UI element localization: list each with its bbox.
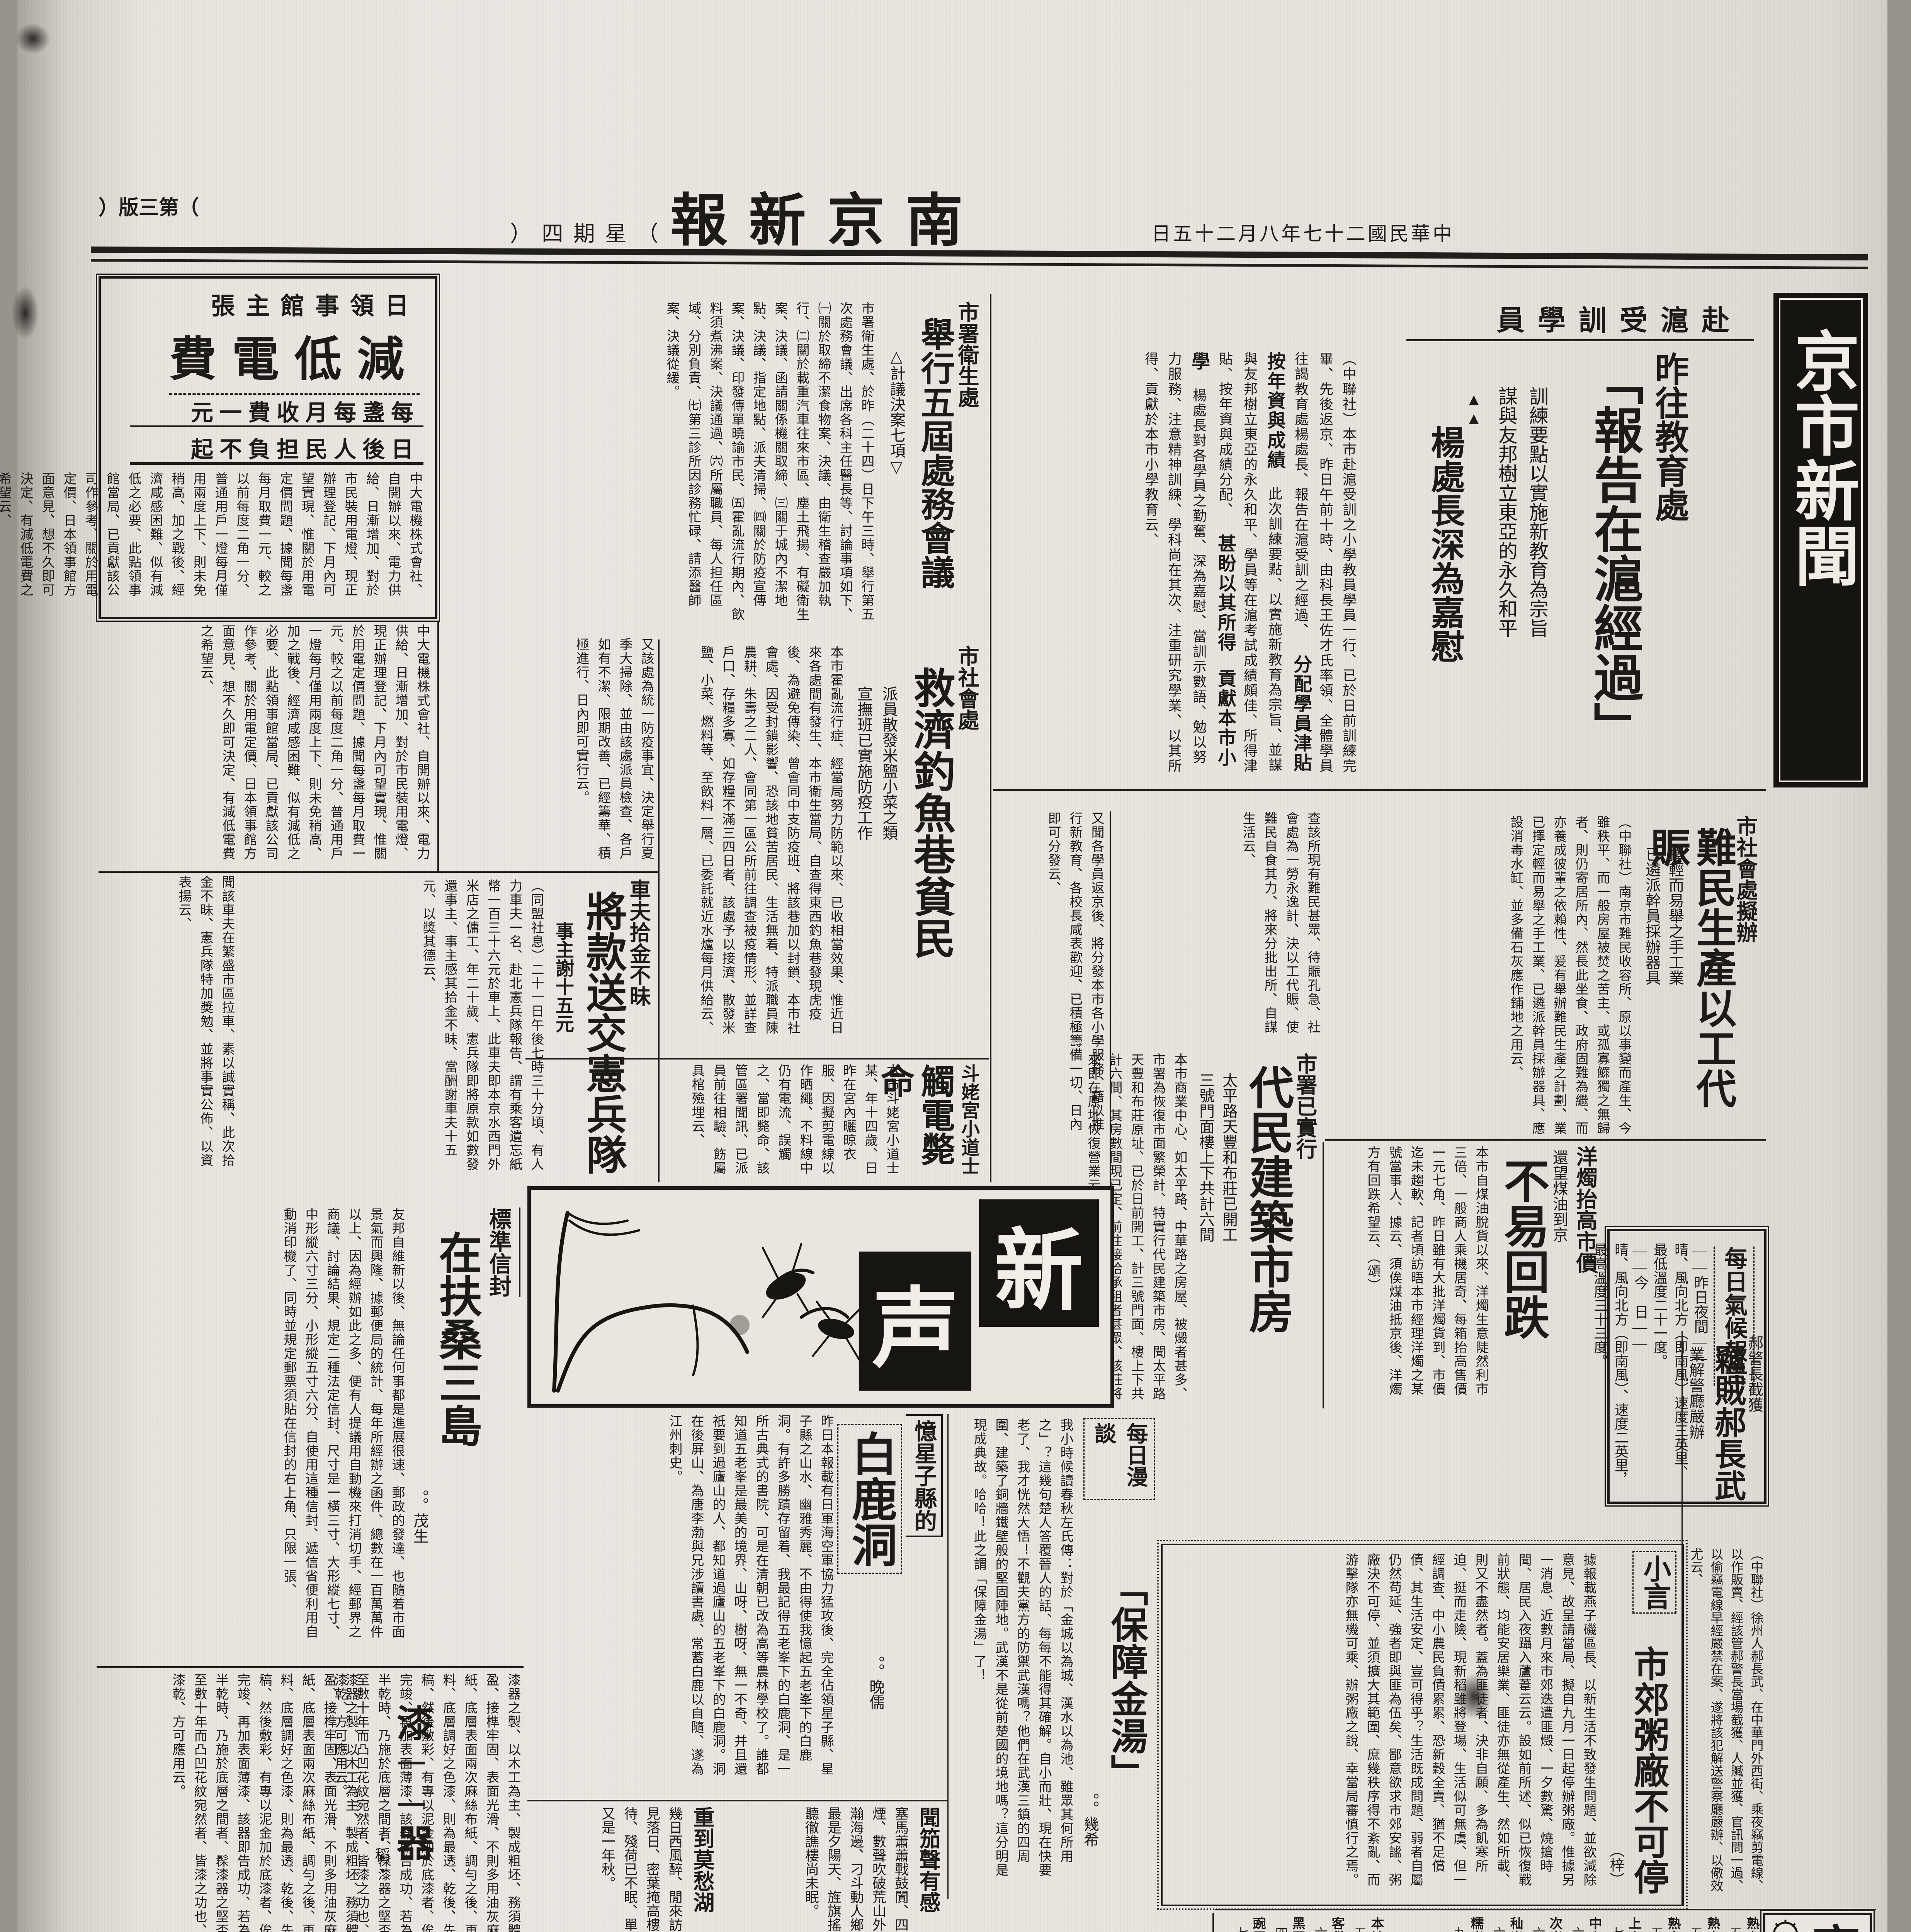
column-box-title: 每日漫談 — [1083, 1418, 1155, 1500]
price-item: 熟上次五九・〇〇 — [1726, 1917, 1760, 1932]
article-daily-chat: 每日漫談 「保障金湯」 。。幾希 我小時候讀春秋左氏傳：對於「金城以為城、漢水以… — [950, 1414, 1159, 1899]
poem-text: 塞馬蕭蕭戰鼓闐、四方猶未靖烽煙、數聲吹破荒山外、千里長征瀚海邊、刁斗動人鄉思處、… — [726, 1806, 912, 1932]
headline-deck: 擇輕而易舉之手工業 — [1663, 846, 1687, 985]
column-title: 小言 — [1632, 1551, 1676, 1614]
feature-title: 「保障金湯」 — [1104, 1569, 1148, 1791]
article-electrocution: 斗姥宮小道士 觸電斃命 本市斗姥宮小道士某、年十四歲、日昨在宮內曬晾衣服、因擬剪… — [525, 1061, 987, 1181]
headline-deck: 太平路天豐和布莊已開工 — [1217, 1072, 1240, 1242]
headline-deck: 宣撫班已實施防疫工作 — [852, 686, 875, 1034]
xinsheng-banner: 新 声 — [527, 1186, 1114, 1408]
article-body: （中聯社）南京市難民收容所、原以事變而產生、今雖秩平、而一般房屋被焚之苦主、或孤… — [1495, 815, 1634, 1136]
article-body: 本市商業中心、如太平路、中華路之房屋、被燬者甚多、市署為恢復市面繁榮計、特實行代… — [1117, 1053, 1190, 1401]
price-item: 熟次五一・〇〇 — [1647, 1917, 1681, 1932]
masthead-title: 報新京南 — [670, 174, 984, 257]
headline-deck: 起不負担民人後日 — [191, 431, 420, 464]
ink-smudge — [15, 23, 50, 54]
newspaper-page: ）版三第（ ）四期星（ 報新京南 日五十二月八年七十二國民華中 京市新聞 員學訓… — [0, 0, 1911, 1932]
article-bailu-cave: 憶星子縣的 白鹿洞 。。晚儒 昨日本報載有日軍海空軍協力猛攻後、完全佔領星子縣、… — [527, 1408, 949, 1797]
article-body: 漆器之製、以木工為主、製成粗坯、務須體質輕盈、接榫牢固、表面光滑、不則多用油灰麻… — [102, 1673, 361, 1932]
article-kicker: 斗姥宮小道士 — [955, 1064, 981, 1175]
headline-main: 市郊粥廠不可停 — [1628, 1646, 1669, 1895]
headline-deck: △計議決案七項▽ — [885, 348, 908, 476]
headline-prefix: 昨往教育處 — [1648, 352, 1688, 522]
edition-label: ）版三第（ — [99, 191, 199, 220]
article-kicker: 市署衛生處 — [951, 301, 981, 408]
article-body: （同盟社息）二十一日午後七時三十分頃、有人力車夫一名、赴北憲兵隊報告、謂有乘客遺… — [249, 879, 547, 1177]
arrow-marks: ▲▲ — [1464, 390, 1484, 428]
headline-deck: 三號門面樓上下共計六間 — [1194, 1072, 1217, 1242]
weather-text: 晴、風向北方（即南風）、速度二英里，最高溫度三十三度。 — [1589, 1243, 1631, 1486]
author-signature: 。。茂生 — [408, 1490, 431, 1544]
article-hygiene-meeting: 市署衛生處 舉行五屆處務會議 △計議決案七項▽ 市署衛生處、於昨（二十四）日下午… — [440, 294, 985, 634]
headline-deck: 派員散發米鹽小菜之類 — [877, 686, 900, 1034]
article-body: （中聯社）本市赴滬受訓之小學教員學員一行、已於日前訓練完畢、先後返京、昨日午前十… — [1001, 352, 1360, 777]
article-body: 本市霍亂流行症、經當局努力防範以來、已收相當效果、惟近日來各處間有發生、本市衛生… — [665, 645, 846, 1047]
article-kicker: 郝警長截獲 — [1743, 1335, 1766, 1412]
logo-char-sheng: 声 — [859, 1252, 971, 1391]
article-body: 本市斗姥宮小道士某、年十四歲、日昨在宮內曬晾衣服、因擬剪電線以作晒繩、不料線中仍… — [535, 1064, 902, 1176]
price-item: 上次七六・六〇 — [1608, 1917, 1642, 1932]
article-body: 中大電機株式會社、自開辦以來、電力供給、日漸增加、對於市民裝用電燈、現正辦理登記… — [112, 472, 425, 607]
price-item: 糯米九一・〇〇 — [1450, 1917, 1484, 1932]
article-body: 我小時候讀春秋左氏傳：對於「金城以為城、漢水以為池、雖眾其何所用之」？這幾句楚人… — [954, 1418, 1076, 1889]
article-body: 據報載燕子磯區長、以新生活不致發生問題、並欲減除意見、故呈請當局、擬自九月一日起… — [1170, 1553, 1599, 1893]
article-report-shanghai: 員學訓受滬赴 昨往教育處 「報告在滬經過」 訓練要點以實施新教育為宗旨 謀與友邦… — [993, 294, 1766, 788]
market-prices-section: 商情 ●米類 每担價 熟上次五九・〇〇熟中次五五・四〇熟次五一・〇〇上次七六・六… — [1215, 1913, 1876, 1932]
price-item: 熟中次五五・四〇 — [1687, 1917, 1721, 1932]
headline-main: 費電低減 — [169, 321, 420, 395]
article-fishing-lane-relief: 市社會處 救濟釣魚巷貧民 派員散發米鹽小菜之類 宣撫班已實施防疫工作 本市霍亂流… — [661, 639, 989, 1053]
article-body: 友邦自維新以後、無論任何事都是進展很速、郵政的發達、也隨着市面景氣而興隆、據郵便… — [102, 1207, 408, 1648]
weekday-label: ）四期星（ — [510, 216, 668, 248]
grass-cricket-illustration — [531, 1190, 898, 1397]
prices-header-title: 商情 — [1804, 1923, 1858, 1932]
section-banner-title: 京市新聞 — [1769, 328, 1873, 587]
headline-main: 救濟釣魚巷貧民 — [906, 667, 954, 959]
headline-deck: 已遴派幹員採辦器具 — [1640, 846, 1663, 985]
article-kicker: 張主館事領日 — [211, 286, 420, 321]
headline-deck: 事主謝十五元 — [549, 922, 576, 1033]
price-item: 客貨豆六八・〇〇 — [1311, 1917, 1345, 1932]
article-kicker: 車夫拾金不昧 — [623, 879, 653, 1007]
poem-text: 幾日西風醉、閒來訪草愁、疎林見落日、密葉掩高樓、寒車如相待、殘荷已不眠、單車重到… — [535, 1806, 686, 1932]
article-body-continued: 查該所現有難民甚眾、待賑孔急、社會處為一勞永逸計、決以工代賑、使難民自食其力、將… — [1115, 811, 1323, 1039]
headline-main: 竊賊郝長武 — [1709, 1343, 1746, 1501]
poetry-column: 聞笳聲有感 ・瑛・ 塞馬蕭蕭戰鼓闐、四方猶未靖烽煙、數聲吹破荒山外、千里長征瀚海… — [529, 1803, 949, 1932]
headline-main: 「報告在滬經過」 — [1586, 355, 1642, 751]
author-signature: 。。晚儒 — [864, 1656, 887, 1710]
article-electric-fee-box: 張主館事領日 費電低減 元一費收月每盞每 起不負担民人後日 中大電機株式會社、自… — [99, 276, 437, 619]
headline-deck: 謀與友邦樹立東亞的永久和平 — [1493, 386, 1520, 680]
article-xiaoyan-box: 小言 市郊粥廠不可停 （梓） 據報載燕子磯區長、以新生活不致發生問題、並欲減除意… — [1161, 1544, 1684, 1906]
headline-deck: 業解警廳嚴辦 — [1684, 1347, 1707, 1439]
poem-title: 重到莫愁湖 — [687, 1806, 717, 1913]
weather-row-label: ——今 日—— — [1629, 1243, 1650, 1352]
headline-main: 舉行五屆處務會議 — [914, 317, 954, 589]
headline-main: 白鹿洞 — [837, 1424, 902, 1574]
headline-deck: 還望煤油到京 — [1547, 1150, 1571, 1242]
sun-mountain-icon — [1770, 1919, 1801, 1932]
article-body-continued: 又該處為統一防疫事宜、決定舉行夏季大掃除、並由該處派員檢查、各戶如有不潔、限期改… — [440, 638, 657, 869]
article-body-continued: 聞該車夫在繁盛市區拉車、素以誠實稱、此次拾金不昧、憲兵隊特加獎勉、並將事實公佈、… — [99, 875, 238, 1180]
article-candle-price: 洋燭抬高市價 還望煤油到京 不易回跌 本市自煤油脫貨以來、洋燭生意陡然利市三倍、… — [1325, 1142, 1603, 1406]
poem-title: 聞笳聲有感 — [913, 1806, 943, 1913]
headline-deck: 訓練要點以實施新教育為宗旨 — [1523, 386, 1551, 680]
article-body: 本市自煤油脫貨以來、洋燭生意陡然利市三倍、一般商人乘機居奇、每箱抬高售價一元七角… — [1329, 1146, 1491, 1401]
price-items: 熟上次五九・〇〇熟中次五五・四〇熟次五一・〇〇上次七六・六〇中次六六・三〇次米六… — [1445, 1917, 1760, 1932]
article-body-misc: 中大電機株式會社、自開辦以來、電力供給、日漸增加、對於市民裝用電燈、現正辦理登記… — [99, 624, 433, 867]
prices-header-box: 商情 — [1763, 1913, 1872, 1932]
headline-main: 不易回跌 — [1496, 1157, 1547, 1340]
logo-char-xin: 新 — [979, 1199, 1099, 1327]
price-item: 豌豆七〇・〇〇 — [1232, 1917, 1266, 1932]
price-item: 秈米六六・七〇 — [1489, 1917, 1523, 1932]
article-body: 漆器之製、以木工為主、製成粗坯、務須體質輕盈、接榫牢固、表面光滑、不則多用油灰麻… — [439, 1673, 524, 1932]
article-thief-hao: 郝警長截獲 竊賊郝長武 業解警廳嚴辦 （中聯社）徐州人郝長武、在中華門外西街、乘… — [1685, 1331, 1766, 1905]
article-body: 市署衛生處、於昨（二十四）日下午三時、舉行第五次處務會議、出席各科主任醫長等、討… — [444, 301, 877, 626]
article-kicker: 市署已實行 — [1289, 1053, 1319, 1159]
headline-deck: 元一費收月每盞每 — [191, 395, 420, 427]
article-kicker: 憶星子縣的 — [906, 1414, 943, 1537]
author-signature: 。。幾希 — [1079, 1793, 1101, 1847]
ink-smudge — [12, 286, 39, 340]
price-item: 次米六三・〇〇 — [1529, 1917, 1563, 1932]
article-body: 昨日本報載有日軍海空軍協力猛攻後、完全佔領星子縣、星子縣之山水、幽雅秀麗、不由得… — [535, 1414, 836, 1785]
article-build-shops: 市署已實行 代民建築市房 太平路天豐和布莊已開工 三號門面樓上下共計六間 本市商… — [1113, 1049, 1323, 1406]
headline-main: 代民建築市房 — [1241, 1065, 1292, 1333]
article-refugee-work-relief: 市社會處擬辦 難民生產以工代賑 擇輕而易舉之手工業 已遴派幹員採辦器具 （中聯社… — [1491, 811, 1762, 1142]
column-title: 標準信封 — [483, 1207, 520, 1297]
price-item: 本地豆五四・六〇 — [1350, 1917, 1384, 1932]
price-items: 本地豆五四・六〇客貨豆六八・〇〇黑豆四六・〇〇豌豆七〇・〇〇 — [1227, 1917, 1384, 1932]
section-banner-jingshi: 京市新聞 — [1773, 293, 1868, 787]
date-line: 日五十二月八年七十二國民華中 — [1151, 218, 1454, 246]
article-kicker: 員學訓受滬赴 — [1497, 298, 1743, 338]
headline-main: 在扶桑三島 — [432, 1231, 481, 1447]
author-signature: （梓） — [1605, 1843, 1626, 1887]
price-item: 黑豆四六・〇〇 — [1272, 1917, 1306, 1932]
headline-deck-bold: 楊處長深為嘉慰 — [1424, 425, 1464, 663]
prices-band1: ●米類 每担價 熟上次五九・〇〇熟中次五五・四〇熟次五一・〇〇上次七六・六〇中次… — [1219, 1917, 1760, 1932]
article-lacquerware: 漆──器 ・稻・ 漆器之製、以木工為主、製成粗坯、務須體質輕盈、接榫牢固、表面光… — [97, 1669, 524, 1932]
article-kicker: 市社會處 — [951, 645, 981, 730]
price-item: 中次六六・三〇 — [1568, 1917, 1602, 1932]
article-standard-envelope: 標準信封 在扶桑三島 。。茂生 友邦自維新以後、無論任何事都是進展很速、郵政的發… — [97, 1196, 524, 1660]
article-body: （中聯社）徐州人郝長武、在中華門外西街、乘夜竊剪電線、以作販賣、經該管郝警長當場… — [1687, 1548, 1766, 1899]
